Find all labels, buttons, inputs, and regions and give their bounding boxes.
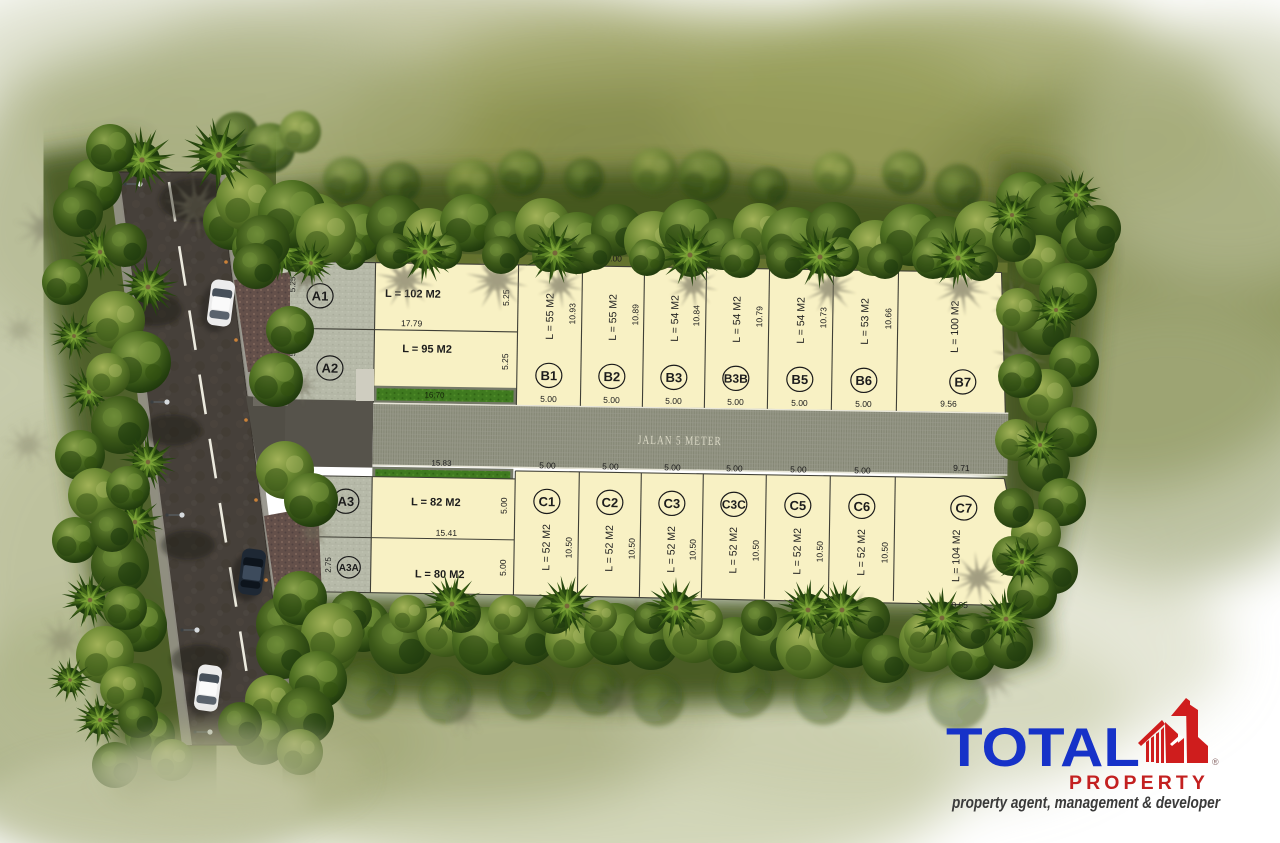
svg-text:5.00: 5.00 (498, 559, 508, 576)
svg-text:17.79: 17.79 (401, 318, 423, 328)
svg-text:B3: B3 (665, 370, 682, 385)
svg-text:5.00: 5.00 (726, 463, 743, 473)
svg-text:B3B: B3B (724, 371, 749, 385)
svg-text:property agent, management & d: property agent, management & developer (951, 794, 1221, 812)
svg-text:5.00: 5.00 (664, 462, 681, 472)
svg-text:5.25: 5.25 (500, 353, 510, 370)
svg-text:C3: C3 (663, 496, 680, 511)
svg-text:PROPERTY: PROPERTY (1069, 773, 1209, 794)
svg-text:5.00: 5.00 (540, 394, 557, 404)
svg-text:B2: B2 (603, 369, 620, 384)
svg-text:10.50: 10.50 (814, 541, 824, 563)
svg-text:5.00: 5.00 (854, 465, 871, 475)
svg-text:L = 54 M2: L = 54 M2 (669, 295, 682, 342)
svg-text:L = 52 M2: L = 52 M2 (603, 525, 616, 572)
svg-text:®: ® (1212, 757, 1219, 767)
svg-text:L = 95 M2: L = 95 M2 (402, 343, 452, 356)
svg-text:10.50: 10.50 (687, 539, 697, 561)
svg-text:C6: C6 (853, 499, 870, 514)
svg-text:B5: B5 (791, 372, 808, 387)
svg-text:9.56: 9.56 (940, 399, 957, 409)
svg-text:L = 82 M2: L = 82 M2 (411, 496, 461, 509)
svg-text:B6: B6 (855, 373, 872, 388)
svg-text:10.84: 10.84 (691, 305, 701, 327)
svg-text:5.00: 5.00 (539, 460, 556, 470)
svg-text:10.50: 10.50 (563, 537, 573, 559)
svg-text:B7: B7 (954, 374, 971, 389)
svg-text:5.00: 5.00 (791, 398, 808, 408)
svg-text:16.70: 16.70 (424, 390, 445, 399)
svg-text:C5: C5 (789, 498, 806, 513)
svg-text:5.00: 5.00 (602, 461, 619, 471)
svg-text:L = 52 M2: L = 52 M2 (791, 528, 804, 575)
svg-text:10.66: 10.66 (883, 308, 893, 330)
svg-text:5.00: 5.00 (790, 464, 807, 474)
svg-text:A1: A1 (312, 288, 329, 303)
svg-text:A3A: A3A (339, 563, 359, 574)
svg-text:C3C: C3C (722, 497, 747, 511)
svg-text:JALAN 5 METER: JALAN 5 METER (638, 433, 722, 448)
svg-text:15.83: 15.83 (431, 459, 452, 468)
svg-text:2.75: 2.75 (324, 557, 333, 573)
svg-text:A2: A2 (322, 361, 339, 376)
svg-text:C7: C7 (955, 501, 972, 516)
svg-text:10.89: 10.89 (630, 304, 640, 326)
svg-text:5.00: 5.00 (665, 396, 682, 406)
svg-text:TOTAL: TOTAL (946, 716, 1140, 778)
svg-text:5.00: 5.00 (603, 395, 620, 405)
svg-text:9.71: 9.71 (953, 463, 970, 473)
svg-text:10.93: 10.93 (567, 303, 577, 325)
svg-text:10.79: 10.79 (754, 306, 764, 328)
svg-text:L = 53 M2: L = 53 M2 (859, 298, 872, 345)
svg-text:L = 54 M2: L = 54 M2 (731, 296, 744, 343)
svg-text:B1: B1 (540, 368, 557, 383)
svg-text:10.50: 10.50 (750, 540, 760, 562)
svg-text:5.00: 5.00 (855, 399, 872, 409)
svg-text:L = 55 M2: L = 55 M2 (607, 294, 620, 341)
svg-text:10.50: 10.50 (879, 542, 889, 564)
svg-text:15.41: 15.41 (436, 528, 458, 538)
svg-text:L = 52 M2: L = 52 M2 (855, 529, 868, 576)
svg-text:A3: A3 (337, 494, 354, 509)
svg-text:5.00: 5.00 (499, 497, 509, 514)
svg-text:C2: C2 (601, 495, 618, 510)
svg-text:L = 54 M2: L = 54 M2 (795, 297, 808, 344)
svg-text:L = 52 M2: L = 52 M2 (727, 527, 740, 574)
svg-text:5.00: 5.00 (727, 397, 744, 407)
svg-text:L = 55 M2: L = 55 M2 (544, 293, 557, 340)
svg-text:C1: C1 (538, 494, 555, 509)
svg-text:L = 52 M2: L = 52 M2 (540, 524, 553, 571)
svg-text:10.73: 10.73 (818, 307, 828, 329)
svg-text:L = 52 M2: L = 52 M2 (665, 526, 678, 573)
svg-text:10.50: 10.50 (626, 538, 636, 560)
